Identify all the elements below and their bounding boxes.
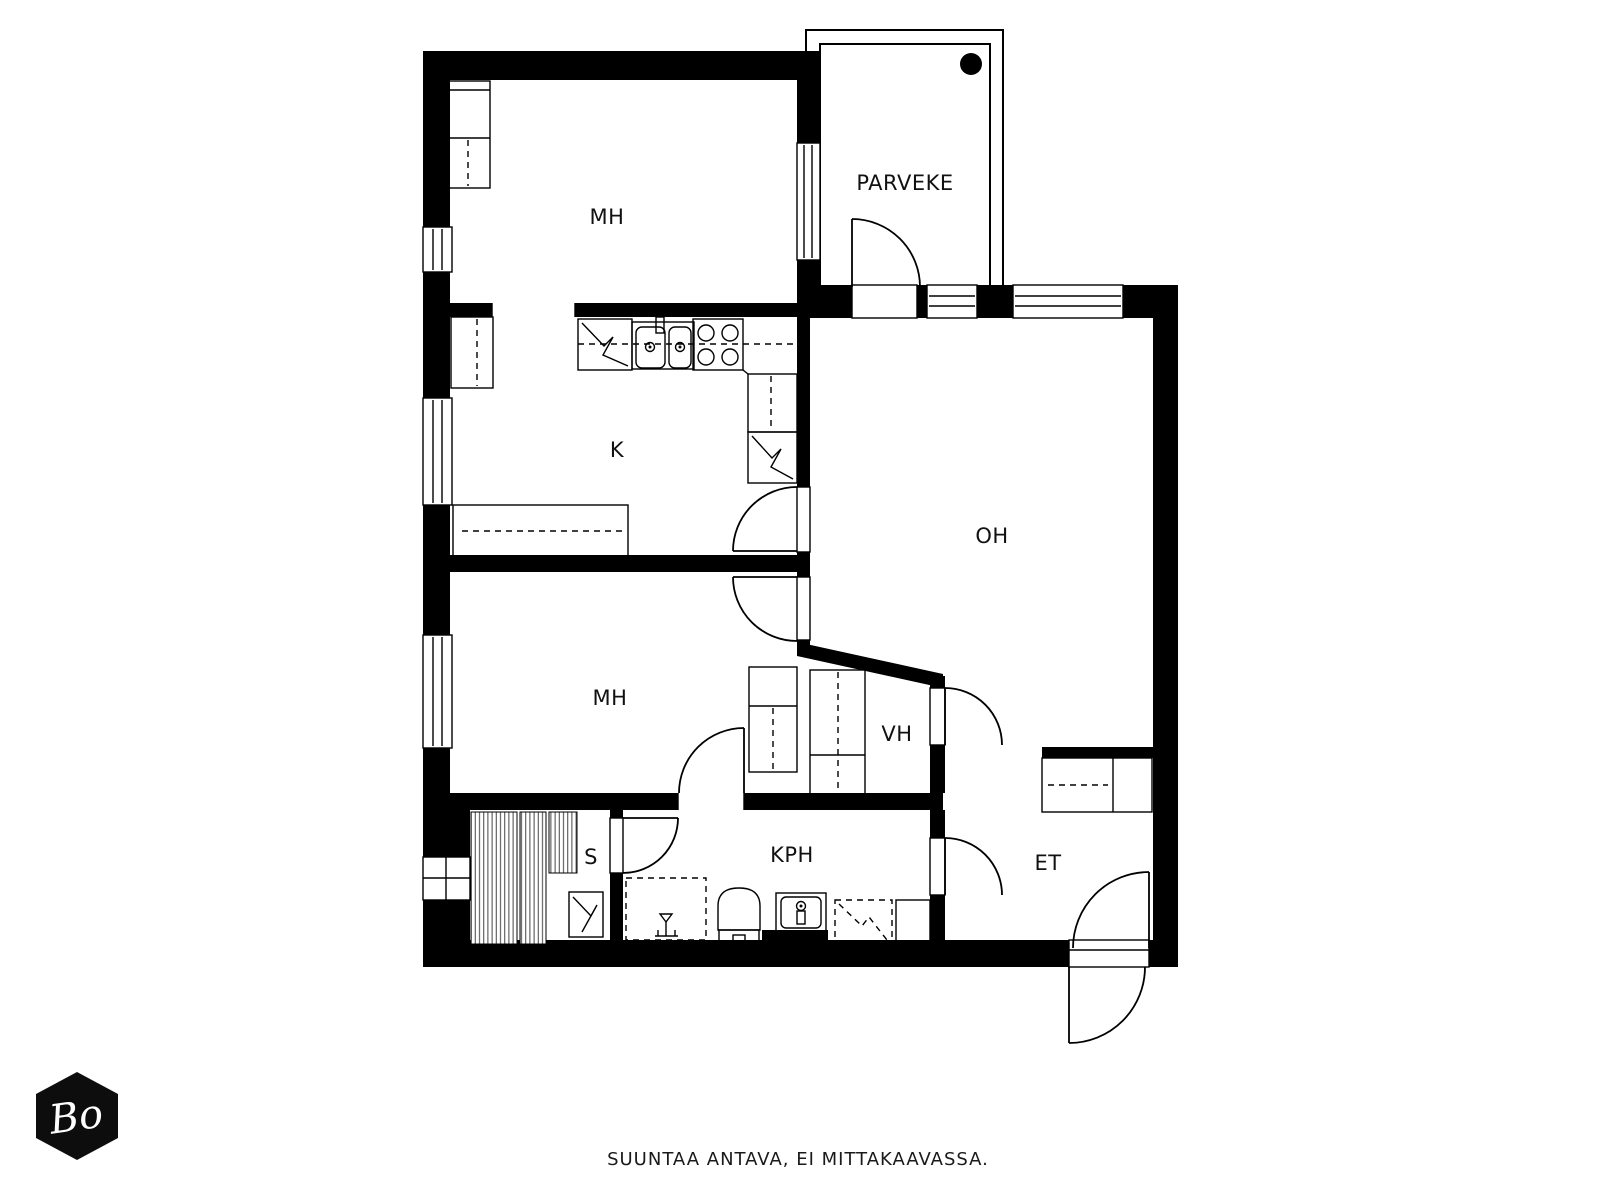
wall-left-1 bbox=[423, 51, 450, 227]
mh2-door-opening bbox=[797, 577, 810, 640]
logo-text: Bo bbox=[45, 1091, 105, 1144]
room-label-kitchen: K bbox=[610, 438, 625, 462]
wall-top bbox=[423, 51, 818, 80]
window-oh-north-2 bbox=[1013, 285, 1123, 318]
room-label-balcony: PARVEKE bbox=[856, 171, 953, 195]
wall-k-oh-a bbox=[797, 317, 810, 487]
footer-disclaimer: SUUNTAA ANTAVA, EI MITTAKAAVASSA. bbox=[607, 1149, 989, 1170]
wall-right bbox=[1153, 285, 1178, 967]
room-label-bedroom-2: MH bbox=[593, 686, 628, 710]
wall-oh-top-a bbox=[797, 285, 852, 318]
window-oh-north-1 bbox=[927, 285, 977, 318]
wall-left-2 bbox=[423, 272, 450, 398]
sauna-door-opening bbox=[610, 818, 623, 873]
room-label-bathroom: KPH bbox=[770, 843, 814, 867]
kitchen-door-opening bbox=[797, 487, 810, 552]
wall-entry-cabinet bbox=[1042, 747, 1153, 758]
wall-left-4 bbox=[423, 748, 450, 793]
wall-mh1-east-upper bbox=[797, 51, 820, 143]
window-mh1-west bbox=[423, 227, 452, 272]
wall-left-3 bbox=[423, 505, 450, 635]
window-mh2-west bbox=[423, 635, 452, 748]
floor-plan: MH PARVEKE K OH MH VH S KPH ET Bo SUUNTA… bbox=[0, 0, 1600, 1200]
wall-vh-east-a bbox=[930, 676, 945, 688]
wall-k-mh2 bbox=[450, 555, 810, 572]
mh1-kitchen-doorway bbox=[492, 302, 575, 318]
sauna-bench-3 bbox=[549, 812, 577, 873]
kph-door-opening bbox=[930, 838, 945, 895]
window-mh1-balcony bbox=[797, 143, 820, 260]
wall-vh-east-d bbox=[930, 895, 945, 940]
vh-door-opening bbox=[930, 688, 945, 745]
wall-oh-top-b bbox=[917, 285, 927, 318]
wall-left-5 bbox=[423, 810, 470, 857]
wall-mh1-bottom-b bbox=[575, 303, 797, 317]
sauna-bench-1 bbox=[471, 812, 517, 944]
mh2-kph-doorway bbox=[678, 792, 744, 811]
balcony-door-opening bbox=[852, 285, 917, 318]
room-label-living-room: OH bbox=[975, 524, 1008, 548]
room-label-entry: ET bbox=[1034, 851, 1061, 875]
wall-vh-east-c bbox=[930, 810, 945, 838]
wall-k-oh-b bbox=[797, 552, 810, 577]
balcony-floor-drain-icon bbox=[960, 53, 982, 75]
room-label-sauna: S bbox=[584, 845, 598, 869]
wall-mh2-bottom-a bbox=[423, 793, 678, 810]
sauna-bench-2 bbox=[520, 812, 546, 944]
wall-bottom-b bbox=[1149, 940, 1178, 967]
room-label-walk-in-closet: VH bbox=[881, 722, 912, 746]
wall-mh1-bottom-a bbox=[450, 303, 492, 317]
entry-door-opening bbox=[1069, 940, 1149, 967]
room-label-bedroom-1: MH bbox=[590, 205, 625, 229]
window-kitchen-west bbox=[423, 398, 452, 505]
wall-vh-east-b bbox=[930, 745, 945, 793]
wall-oh-top-c bbox=[977, 285, 1013, 318]
wall-sauna-east-b bbox=[610, 873, 623, 940]
wall-sauna-east-a bbox=[610, 810, 623, 818]
window-sauna-west bbox=[423, 857, 470, 900]
